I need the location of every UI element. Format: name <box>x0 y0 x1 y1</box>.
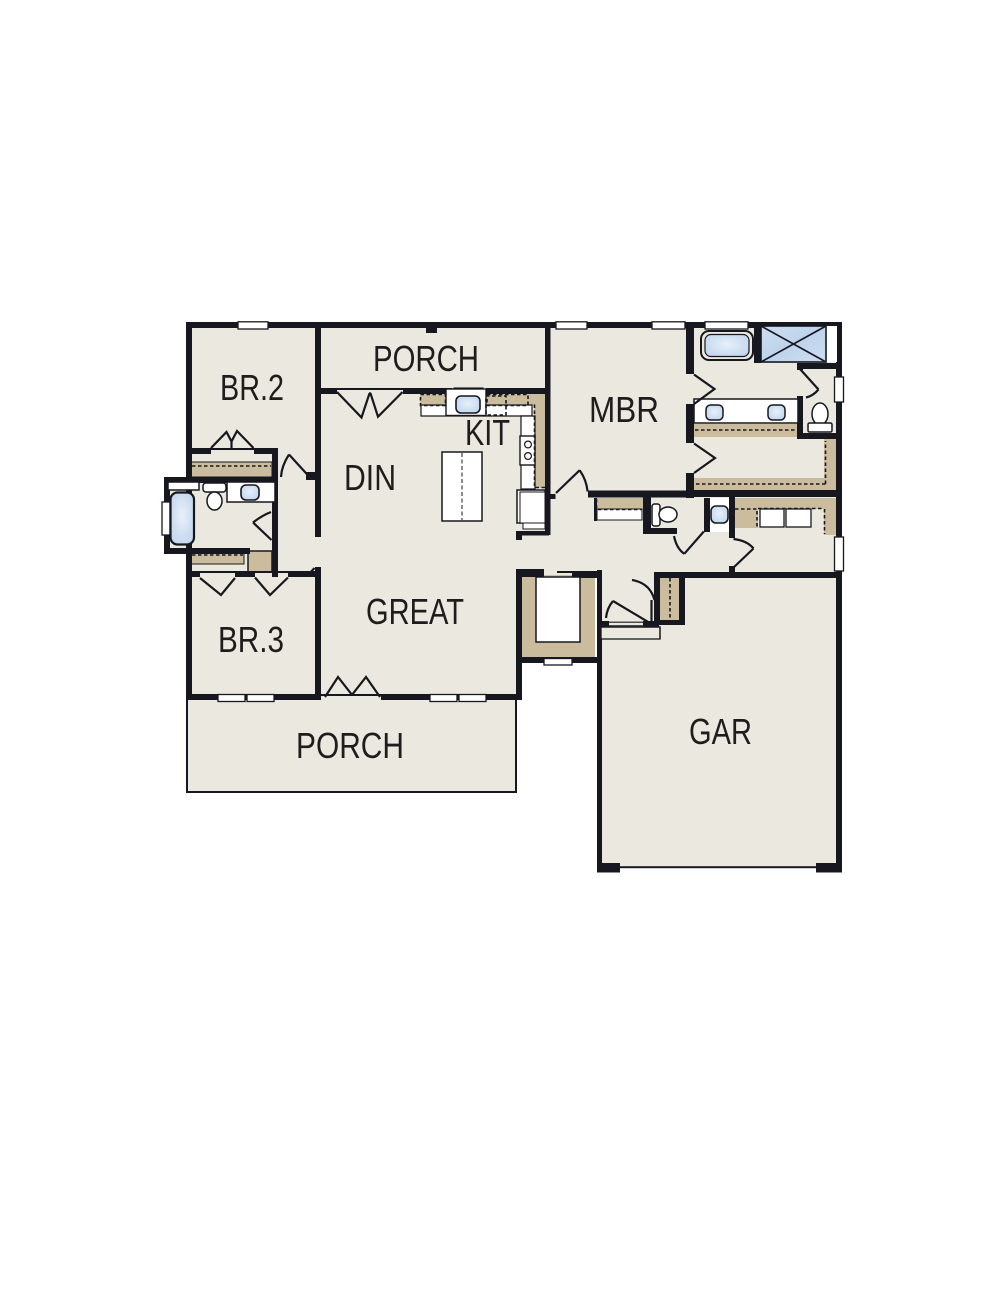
svg-text:PORCH: PORCH <box>373 338 479 379</box>
svg-text:DIN: DIN <box>344 457 396 498</box>
svg-text:BR.2: BR.2 <box>220 367 284 408</box>
svg-text:PORCH: PORCH <box>296 725 404 766</box>
svg-text:MBR: MBR <box>589 389 659 430</box>
svg-text:GREAT: GREAT <box>366 591 464 632</box>
svg-text:BR.3: BR.3 <box>218 619 284 660</box>
svg-text:GAR: GAR <box>689 711 752 752</box>
svg-text:KIT: KIT <box>465 412 510 453</box>
